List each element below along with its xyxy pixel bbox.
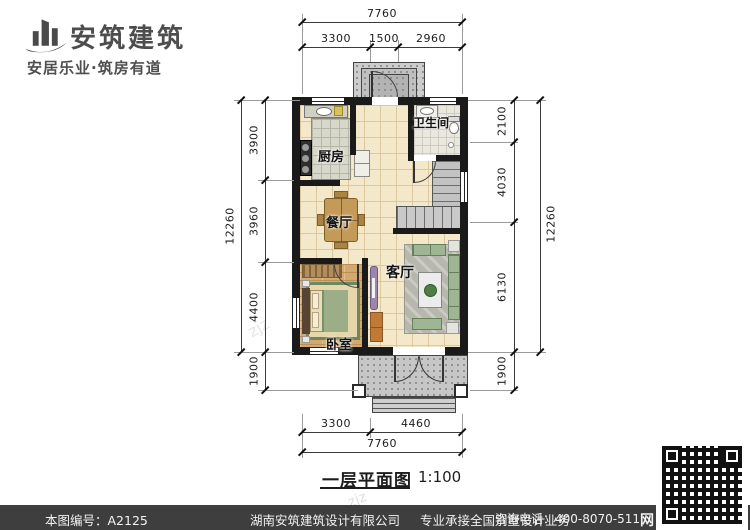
floor-drain <box>448 142 454 148</box>
bedroom-wall-right <box>362 258 368 347</box>
sofa-short <box>412 244 446 256</box>
building-logo-icon <box>24 16 68 58</box>
room-label-kitchen: 厨房 <box>318 146 344 165</box>
storage-cabinet <box>370 312 383 342</box>
logo-tagline: 安居乐业·筑房有道 <box>27 57 162 78</box>
outer-wall-right <box>460 97 468 355</box>
dim-line <box>302 452 462 453</box>
dim-line <box>514 100 515 390</box>
porch-column-right <box>454 384 468 398</box>
plan-title-underline <box>320 487 410 489</box>
dim-top-seg1: 3300 <box>321 32 351 45</box>
footer-phone: 咨询电话：400-8070-511 <box>495 510 640 527</box>
bedroom-door-leaf <box>357 264 359 288</box>
nightstand <box>302 280 310 287</box>
qr-code <box>656 440 748 530</box>
rear-door-leaf <box>371 71 373 97</box>
rear-door-opening <box>372 97 398 105</box>
kitchen-window <box>312 97 344 105</box>
plant <box>424 284 437 297</box>
extension-line <box>302 14 303 94</box>
dim-line <box>241 100 242 352</box>
side-table <box>448 240 460 252</box>
dining-chair <box>317 214 324 226</box>
dim-left-porch: 1900 <box>248 356 261 386</box>
side-table <box>446 322 459 334</box>
dim-bottom-seg2: 4460 <box>401 417 431 430</box>
bathroom-window <box>430 97 456 105</box>
bed-pillow <box>312 312 319 328</box>
entry-door-leaf-right <box>442 356 444 382</box>
dim-right-seg3: 6130 <box>496 272 509 302</box>
extension-line <box>468 100 546 101</box>
dining-chair <box>334 191 348 198</box>
stair-window <box>460 172 468 202</box>
dining-chair <box>334 242 348 249</box>
dim-line <box>302 432 462 433</box>
tv-screen <box>372 278 375 298</box>
dish-rack <box>334 106 343 116</box>
stove-burner <box>302 144 309 151</box>
dim-bottom-overall: 7760 <box>367 437 397 450</box>
dim-right-porch: 1900 <box>496 356 509 386</box>
extension-line <box>258 390 358 391</box>
dining-chair <box>358 214 365 226</box>
bedroom-window-west <box>292 298 300 328</box>
footer-plan-number: 本图编号：A2125 <box>45 510 148 529</box>
dim-line <box>540 100 541 352</box>
sofa-chair <box>412 318 442 330</box>
bed-pillow <box>312 293 319 309</box>
stair-wall <box>393 228 468 234</box>
dim-right-overall: 12260 <box>545 205 558 243</box>
dim-right-seg1: 2100 <box>496 106 509 136</box>
nightstand <box>302 336 310 343</box>
dim-top-seg2: 1500 <box>369 32 399 45</box>
kitchen-wall-right <box>350 97 356 155</box>
bed-headboard <box>302 288 310 334</box>
qr-finder-top-right <box>722 446 742 466</box>
stairs-upper-flight <box>432 160 461 207</box>
dim-bottom-seg1: 3300 <box>321 417 351 430</box>
qr-finder-top-left <box>662 446 682 466</box>
stove-burner <box>302 155 309 162</box>
kitchen-sink <box>316 107 332 116</box>
sofa-long <box>448 254 460 320</box>
extension-line <box>462 14 463 94</box>
footer-company: 湖南安筑建筑设计有限公司 <box>250 510 400 529</box>
dim-top-overall: 7760 <box>367 7 397 20</box>
dim-left-seg2: 3960 <box>248 206 261 236</box>
fridge-cabinet <box>354 150 370 177</box>
entry-door-opening <box>393 347 445 355</box>
room-label-living: 客厅 <box>386 262 414 282</box>
bed-blanket <box>322 290 348 332</box>
room-label-bathroom: 卫生间 <box>413 114 449 131</box>
stairs-lower-flight <box>396 206 461 229</box>
dim-line <box>302 47 462 48</box>
entry-steps <box>372 397 456 413</box>
page: 安筑建筑 安居乐业·筑房有道 安筑建筑 zjz zjz <box>0 0 750 530</box>
extension-line <box>468 352 546 353</box>
extension-line <box>234 100 300 101</box>
plan-scale: 1:100 <box>418 468 461 486</box>
qr-finder-bottom-left <box>662 504 682 524</box>
dim-top-seg3: 2960 <box>416 32 446 45</box>
porch-column-left <box>352 384 366 398</box>
toilet-bowl <box>449 122 459 134</box>
bathroom-door-leaf <box>413 161 415 183</box>
entry-door-leaf-left <box>394 356 396 382</box>
dim-line <box>302 22 462 23</box>
room-label-dining: 餐厅 <box>326 212 352 231</box>
dim-right-seg2: 4030 <box>496 167 509 197</box>
dim-left-seg1: 3900 <box>248 125 261 155</box>
room-label-bedroom: 卧室 <box>326 334 352 353</box>
dim-left-seg3: 4400 <box>248 292 261 322</box>
extension-line <box>370 418 371 438</box>
dim-left-overall: 12260 <box>224 207 237 245</box>
stove-burner <box>302 166 309 173</box>
dim-line <box>265 100 266 390</box>
logo-name: 安筑建筑 <box>70 18 186 55</box>
footer-site-mark: 网 <box>640 510 654 530</box>
kitchen-wall-bottom <box>292 180 340 186</box>
